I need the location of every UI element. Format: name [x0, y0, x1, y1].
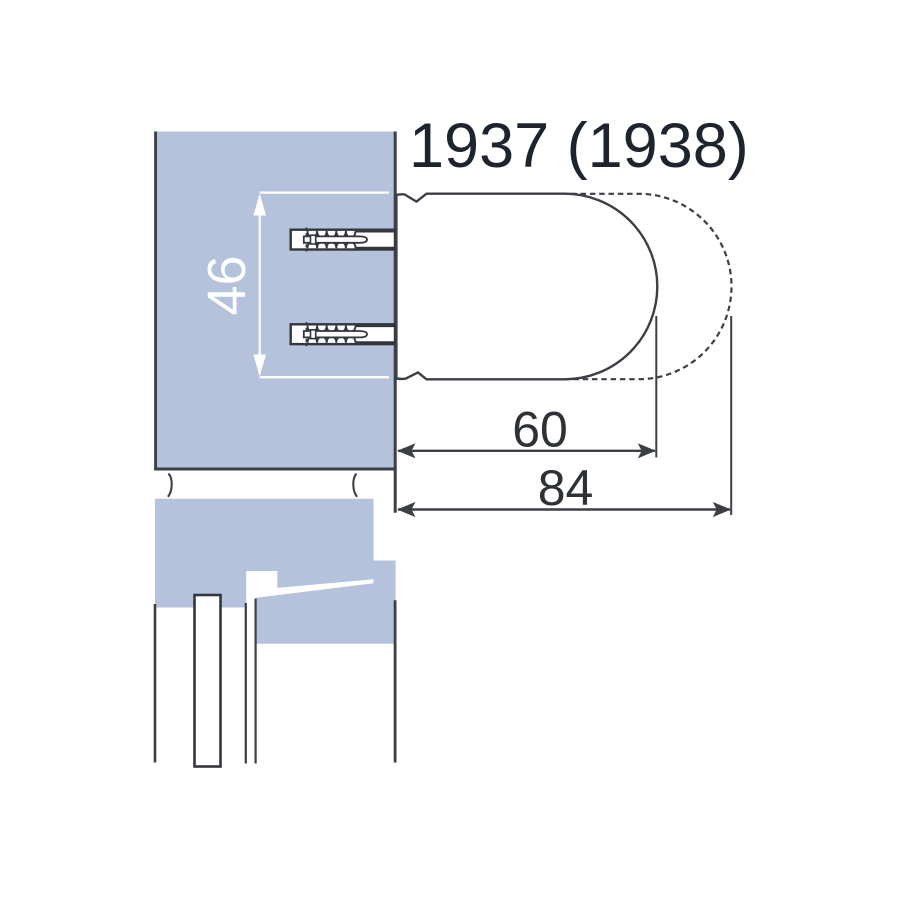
svg-text:84: 84: [538, 460, 594, 516]
svg-text:1937 (1938): 1937 (1938): [409, 111, 749, 181]
svg-text:60: 60: [512, 402, 568, 458]
svg-text:46: 46: [197, 255, 257, 315]
